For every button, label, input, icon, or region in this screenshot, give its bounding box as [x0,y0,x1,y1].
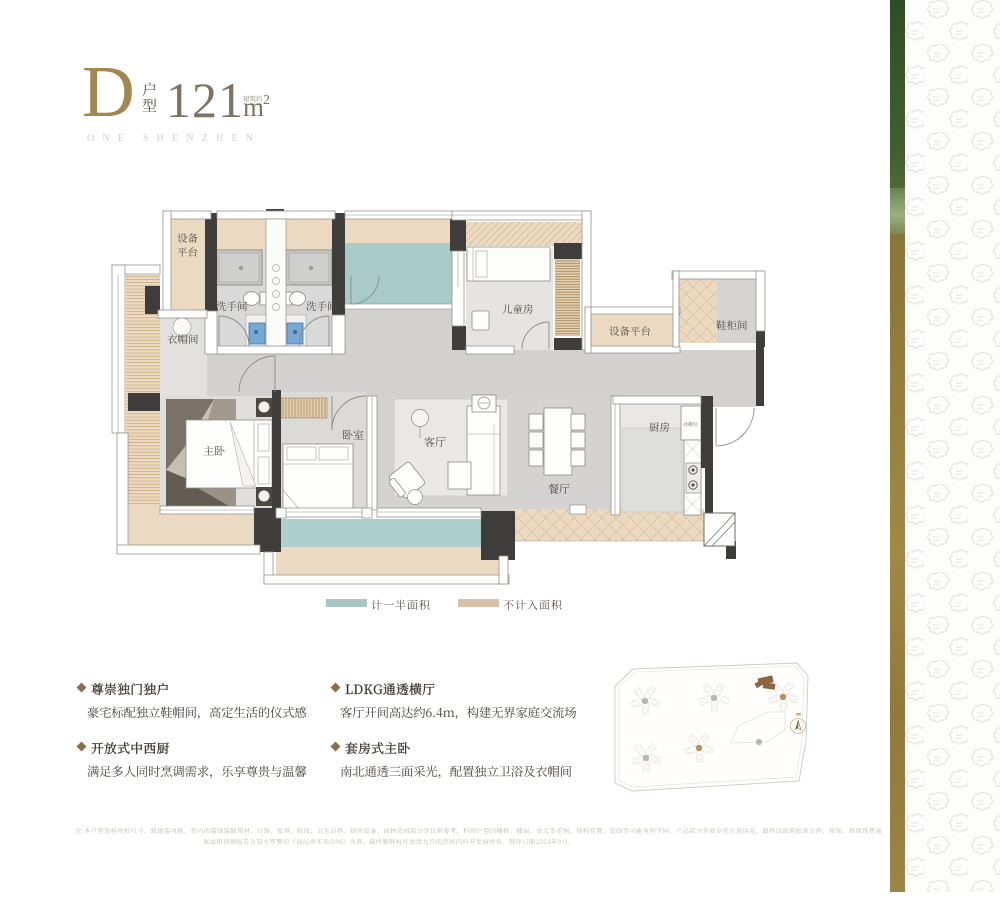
svg-text:2: 2 [263,93,270,108]
svg-text:D: D [82,51,135,132]
svg-text:121: 121 [166,72,244,128]
svg-text:m: m [243,92,264,122]
svg-text:ONE SHENZHEN: ONE SHENZHEN [87,133,261,144]
